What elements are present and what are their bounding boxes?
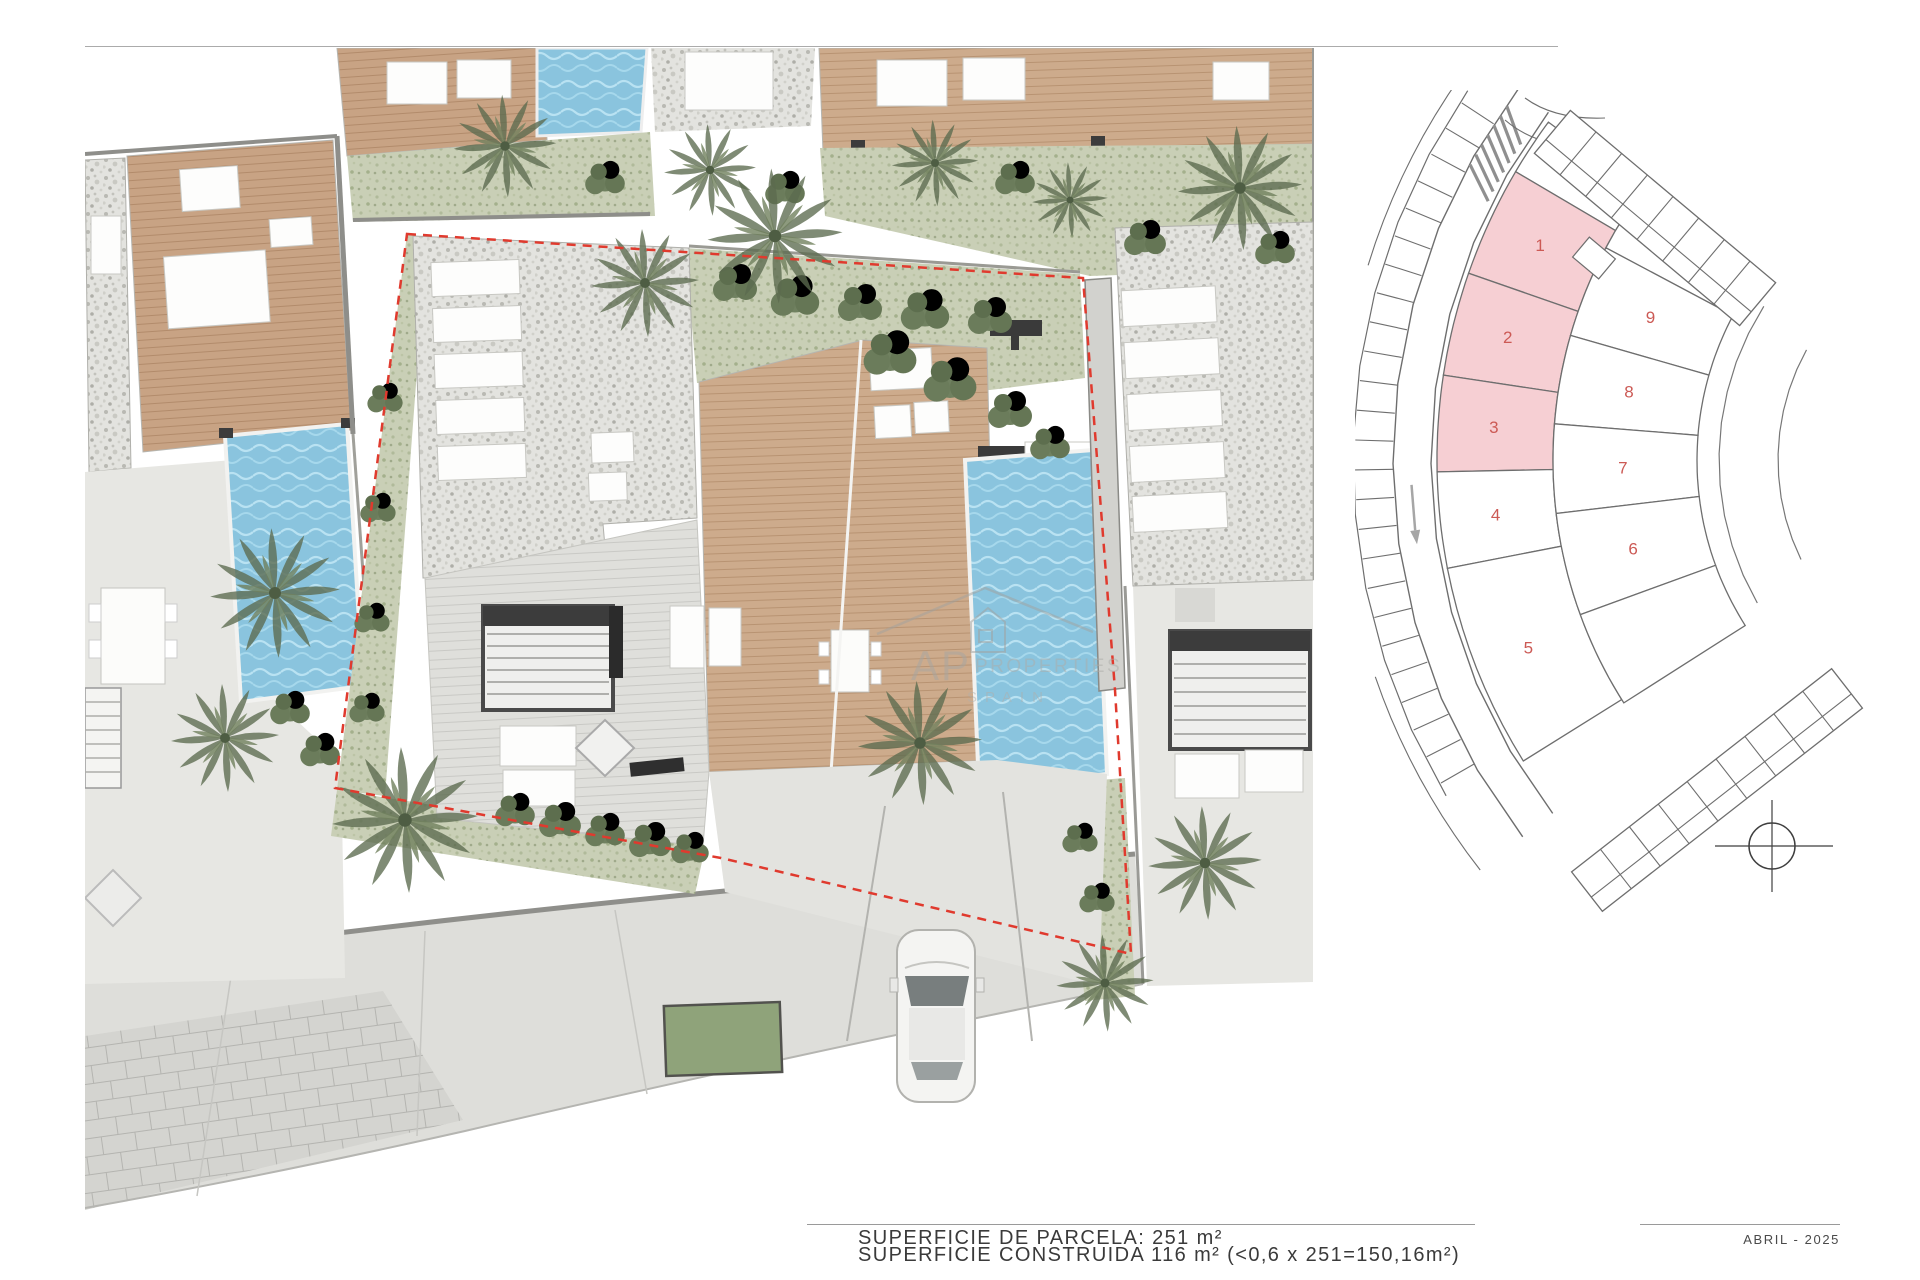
plot-label-1: 1 <box>1535 236 1544 255</box>
footer-rule <box>807 1224 1475 1225</box>
north-symbol <box>1715 800 1833 892</box>
plot-label-7: 7 <box>1618 458 1627 477</box>
site-plan: AP PROPERTIES SPAIN <box>85 48 1315 1218</box>
built-area-text: SUPERFICIE CONSTRUIDA 116 m² (<0,6 x 251… <box>858 1247 1460 1264</box>
key-plan: 123459876 <box>1355 90 1885 920</box>
date-rule <box>1640 1224 1840 1225</box>
plot-label-9: 9 <box>1646 308 1655 327</box>
watermark-initials: AP <box>911 642 971 689</box>
plot-label-6: 6 <box>1628 540 1637 559</box>
sheet-top-rule <box>85 46 1558 47</box>
date-label: ABRIL - 2025 <box>1640 1232 1840 1247</box>
footer-annotations: SUPERFICIE DE PARCELA: 251 m² SUPERFICIE… <box>858 1230 1460 1264</box>
plot-label-2: 2 <box>1503 328 1512 347</box>
watermark-sub: SPAIN <box>967 689 1051 706</box>
left-villa <box>85 136 370 984</box>
plot-label-5: 5 <box>1524 639 1533 658</box>
plot-label-3: 3 <box>1489 418 1498 437</box>
plot-label-4: 4 <box>1491 505 1500 524</box>
right-villa <box>1115 222 1313 986</box>
plot-label-8: 8 <box>1624 383 1633 402</box>
watermark-name: PROPERTIES <box>975 656 1122 677</box>
car <box>890 930 984 1102</box>
